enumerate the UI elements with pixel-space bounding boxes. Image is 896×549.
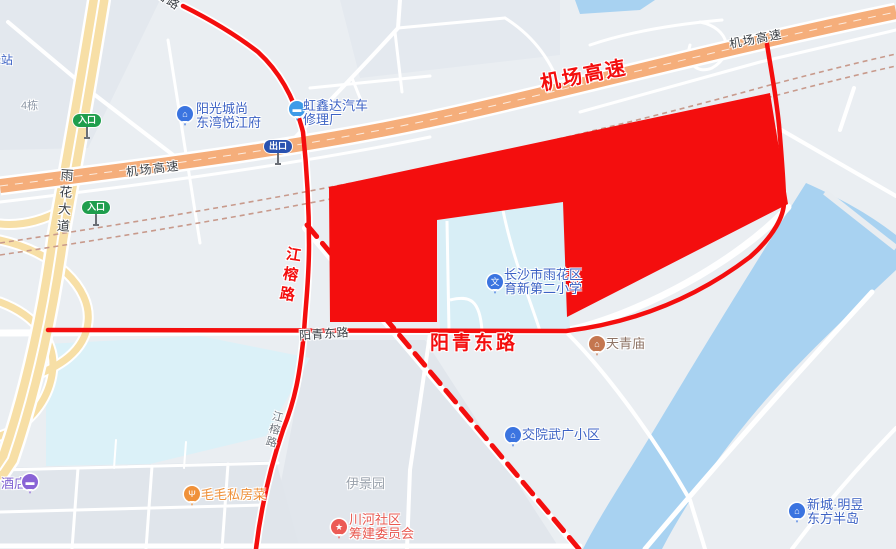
temple-icon[interactable]: ⌂	[589, 336, 605, 352]
poi-building-4: 4栋	[21, 101, 38, 113]
poi-station-partial[interactable]: 驿站	[0, 54, 13, 67]
poi-school[interactable]: 长沙市雨花区育新第二小学	[504, 268, 582, 295]
restaurant-icon[interactable]: Ψ	[184, 486, 200, 502]
badge-pole	[277, 153, 279, 164]
poi-maomao-restaurant[interactable]: 毛毛私房菜	[201, 488, 266, 502]
poi-jiaoyuan-estate[interactable]: 交院武广小区	[522, 428, 600, 442]
badge-pole	[95, 214, 97, 225]
residence-icon[interactable]: ⌂	[177, 106, 193, 122]
poi-car-repair[interactable]: 虹鑫达汽车修理厂	[303, 99, 368, 126]
entrance-badge-1: 入口	[73, 114, 101, 127]
poi-tianqing-temple[interactable]: 天青庙	[606, 337, 645, 351]
poi-sunshine-city[interactable]: 阳光城尚东湾悦江府	[196, 102, 261, 129]
hotel-bed-icon[interactable]: ▬	[22, 474, 38, 490]
community-star-icon[interactable]: ★	[331, 519, 347, 535]
estate-icon[interactable]: ⌂	[505, 427, 521, 443]
estate-icon[interactable]: ⌂	[789, 503, 805, 519]
school-icon[interactable]: 文	[487, 274, 503, 290]
map-viewport[interactable]: 机场高速 机场高速 机场高速 雨花大道 江榕路 江榕路 江榕路 阳青东路 阳青东…	[0, 0, 896, 549]
exit-badge: 出口	[264, 140, 292, 153]
map-canvas	[0, 0, 896, 549]
poi-yijingyuan: 伊景园	[346, 477, 385, 491]
entrance-badge-2: 入口	[82, 201, 110, 214]
badge-pole	[86, 127, 88, 138]
poi-chuanhe-committee[interactable]: 川河社区筹建委员会	[349, 513, 414, 540]
poi-xincheng[interactable]: 新城·明昱东方半岛	[807, 498, 863, 525]
road-label-yangqing-red: 阳青东路	[430, 334, 518, 354]
corner-water	[575, 0, 655, 14]
